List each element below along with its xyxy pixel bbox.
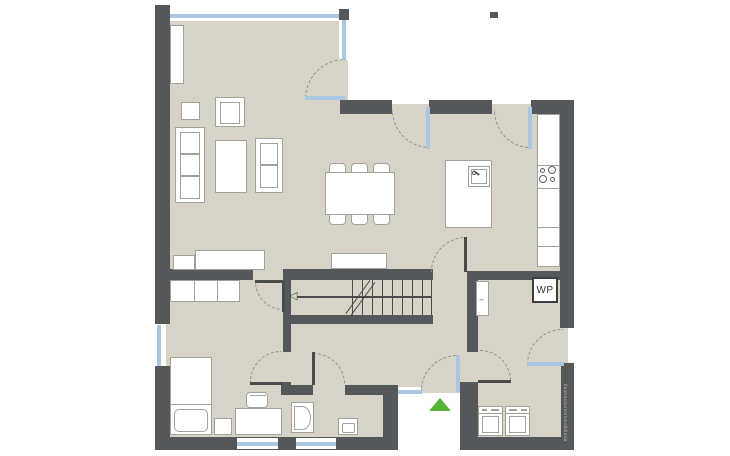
watermark-text: ilustracionesinmobiliaria <box>563 384 568 434</box>
dryer <box>505 406 530 436</box>
terrace-door1-leaf <box>426 107 430 149</box>
wall-stairs-bottom <box>283 315 433 324</box>
living-room-side-window <box>342 19 346 60</box>
stair-tread <box>382 280 383 315</box>
nightstand <box>214 418 232 435</box>
terrace-door2-leaf <box>528 107 532 149</box>
wall-right-upper <box>560 104 574 328</box>
stair-tread <box>392 280 393 315</box>
side-table <box>181 102 200 120</box>
bathroom-door-leaf <box>312 352 315 385</box>
wall-corner-post <box>339 9 349 20</box>
living-cabinet <box>170 25 184 84</box>
sideboard-small <box>173 255 195 270</box>
wall-marker-square <box>490 12 498 18</box>
armchair <box>215 97 245 127</box>
heat-pump-label: WP <box>536 285 553 296</box>
front-door-leaf <box>456 356 460 392</box>
wall-terrace-a <box>340 100 392 114</box>
cooktop-burner <box>548 166 556 174</box>
wall-bath-top-left <box>281 385 313 395</box>
kitchen-hall-door-leaf <box>464 237 467 272</box>
coffee-table <box>215 140 247 193</box>
cooktop-burner <box>539 175 547 183</box>
wardrobe <box>170 280 240 302</box>
cooktop-burner <box>540 168 545 173</box>
living-room-top-window <box>170 14 341 18</box>
toilet <box>338 418 358 435</box>
stair-direction-arrow-icon: ◁ <box>289 291 297 302</box>
bedroom-left-window <box>157 325 161 366</box>
entry-sidelight-window <box>398 390 422 394</box>
desk <box>235 408 282 435</box>
stair-tread <box>431 280 432 315</box>
bedroom-bottom-window <box>237 442 278 446</box>
living-terrace-door-leaf <box>305 96 345 100</box>
kitchen-counter <box>537 114 560 267</box>
desk-chair <box>246 392 268 408</box>
sofa-left <box>175 127 205 203</box>
stair-tread <box>422 280 423 315</box>
bedroom-door1-closed-line <box>255 280 283 283</box>
floor-plan: ◁ WP ↔ <box>0 0 730 456</box>
stair-tread <box>402 280 403 315</box>
wall-terrace-b <box>429 100 492 114</box>
kitchen-sink <box>468 166 490 187</box>
side-door-leaf <box>527 362 564 366</box>
sofa-right <box>255 138 283 193</box>
cooktop-burner <box>550 177 555 182</box>
stair-tread <box>412 280 413 315</box>
sliding-door-panel: ↔ <box>476 281 489 316</box>
utility-door-leaf <box>478 380 511 383</box>
wall-bedroom-right <box>283 325 291 352</box>
wall-living-stairs <box>283 269 433 280</box>
stair-direction-line <box>297 296 431 298</box>
dining-table <box>325 172 395 215</box>
dining-sideboard <box>331 253 387 269</box>
washbasin <box>291 402 314 433</box>
bathroom-bottom-window <box>296 442 336 446</box>
wall-porch-right <box>460 382 478 450</box>
wall-bath-right <box>383 385 398 450</box>
bedroom-door1-leaf <box>282 281 285 312</box>
sideboard-long <box>195 250 265 270</box>
washing-machine <box>478 406 503 436</box>
heat-pump-box: WP <box>532 277 558 303</box>
wall-living-bedroom-left <box>166 269 253 280</box>
sliding-door-arrow-icon: ↔ <box>478 296 485 303</box>
bedroom-door2-leaf <box>250 382 282 385</box>
entrance-marker-icon <box>429 398 451 411</box>
bed <box>170 357 212 435</box>
